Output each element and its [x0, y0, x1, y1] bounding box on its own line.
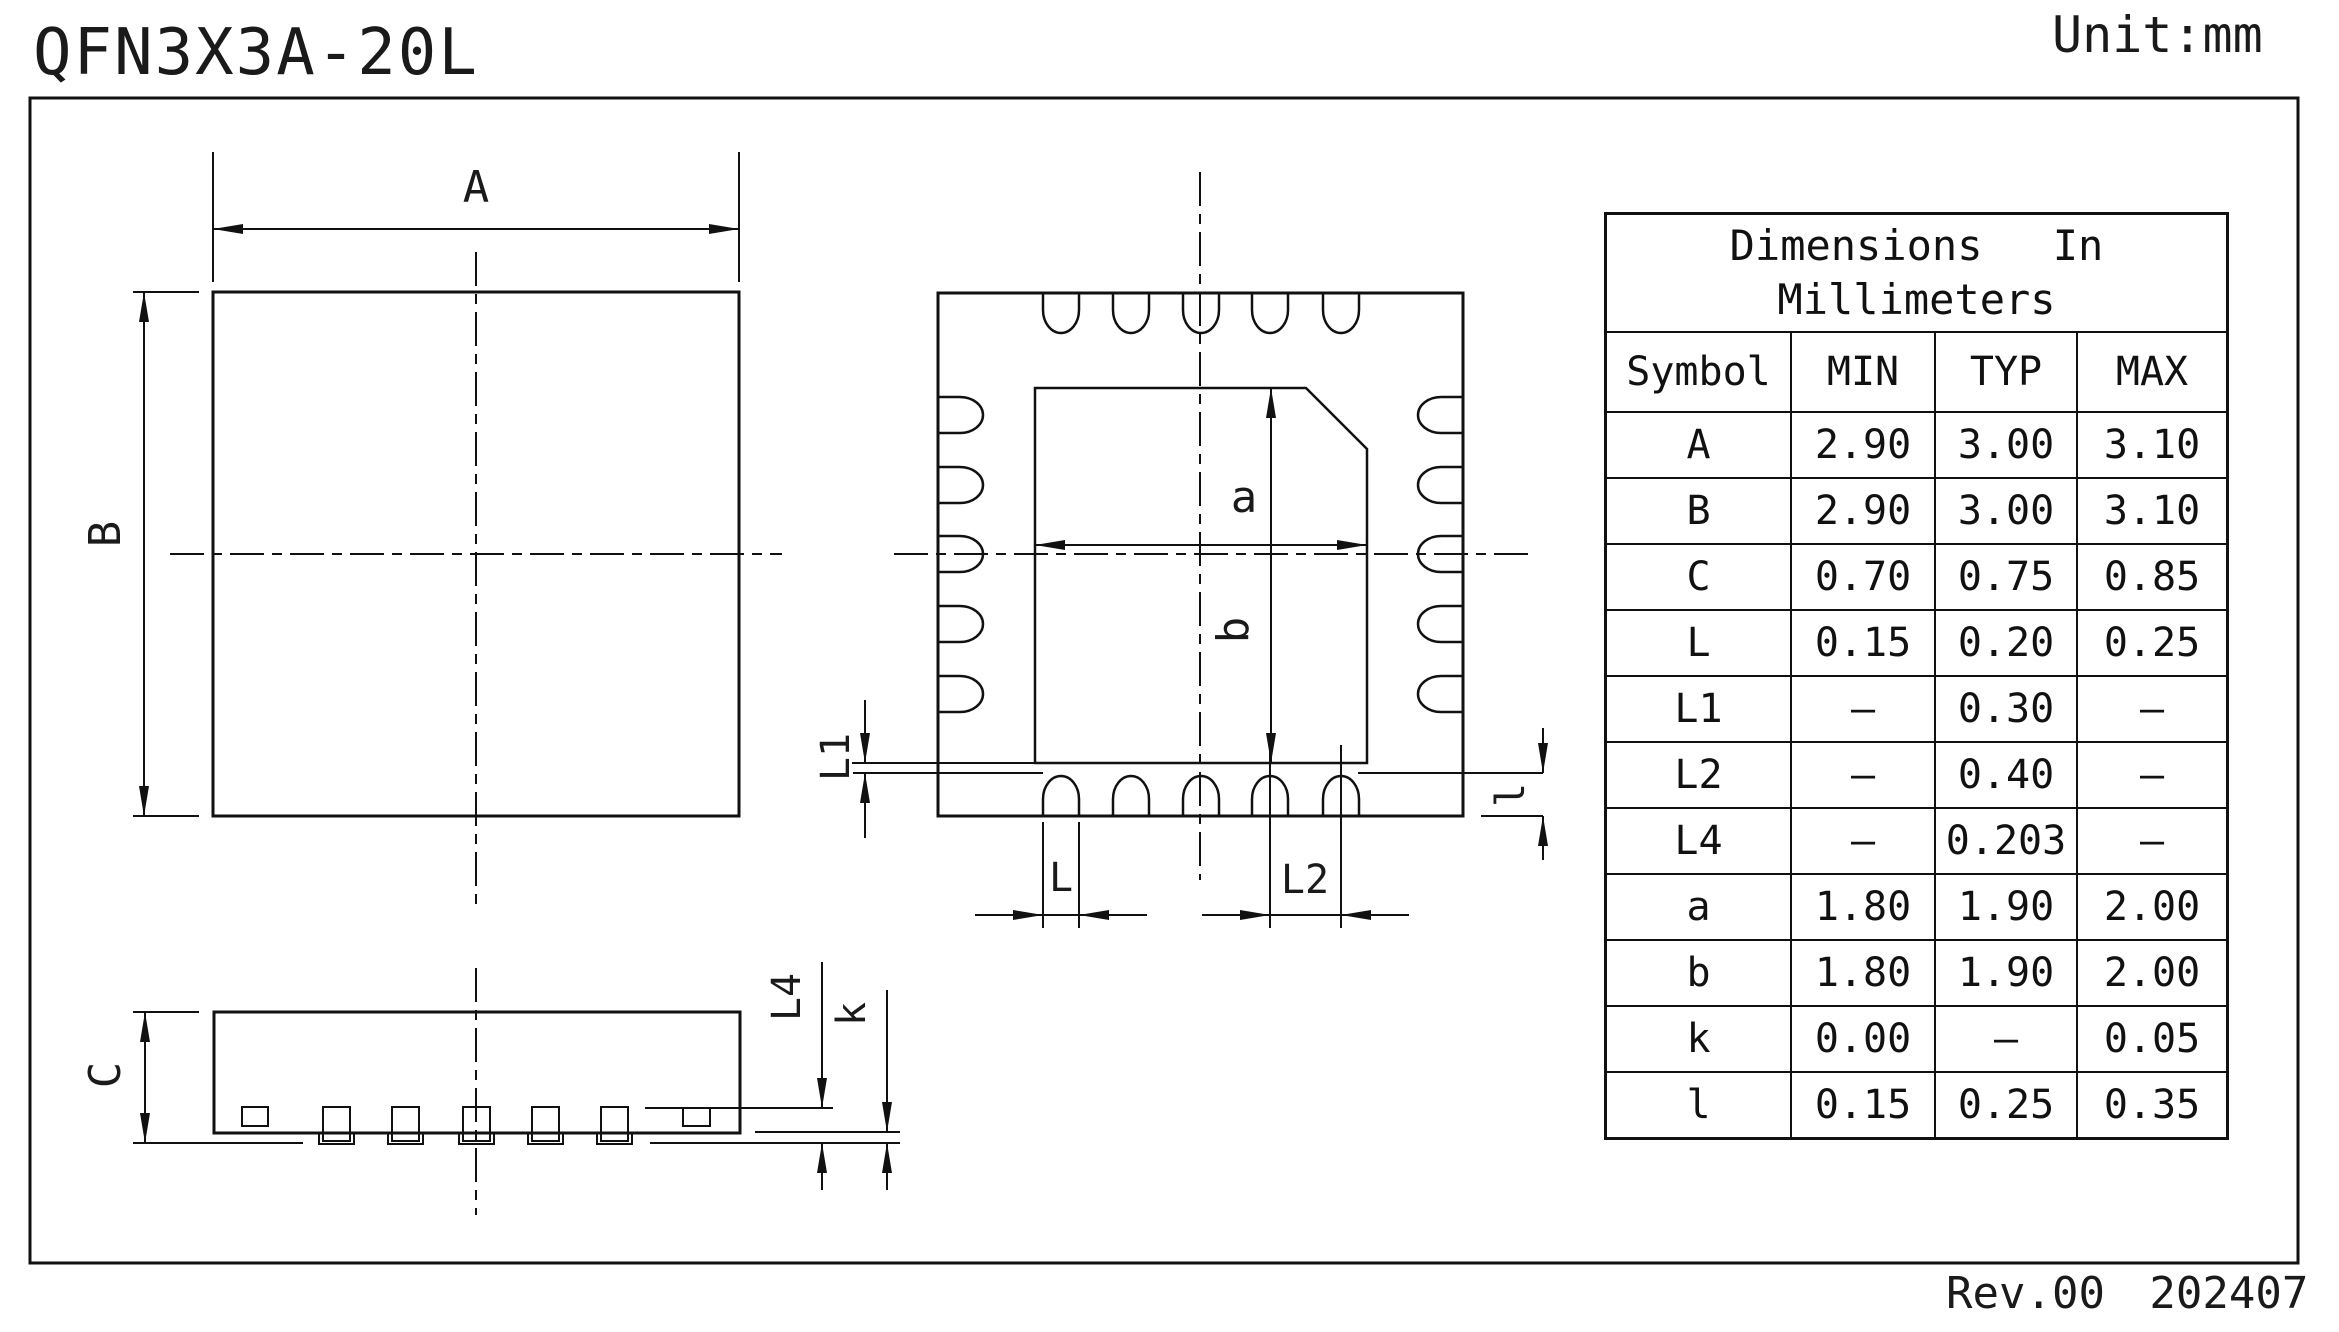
top-view: A B	[80, 152, 782, 905]
table-cell: 3.10	[2078, 413, 2226, 477]
dimension-k: k	[829, 990, 887, 1190]
table-cell: 0.15	[1792, 1073, 1934, 1137]
dimension-L: L	[975, 822, 1147, 928]
dim-label-L2: L2	[1281, 857, 1329, 903]
col-header-max: MAX	[2078, 333, 2226, 411]
table-cell: 2.00	[2078, 941, 2226, 1005]
col-header-symbol: Symbol	[1607, 333, 1790, 411]
dimension-l: l	[1358, 728, 1543, 860]
table-cell: B	[1607, 479, 1790, 543]
table-cell: 0.15	[1792, 611, 1934, 675]
dim-label-l: l	[1488, 783, 1534, 807]
table-cell: 0.40	[1936, 743, 2076, 807]
col-header-min: MIN	[1792, 333, 1934, 411]
table-cell: 3.00	[1936, 413, 2076, 477]
table-cell: L	[1607, 611, 1790, 675]
table-cell: A	[1607, 413, 1790, 477]
table-cell: L4	[1607, 809, 1790, 873]
table-cell: 1.90	[1936, 875, 2076, 939]
dim-label-L1: L1	[813, 733, 859, 781]
table-cell: 1.90	[1936, 941, 2076, 1005]
table-cell: b	[1607, 941, 1790, 1005]
dim-label-A: A	[463, 162, 490, 213]
table-cell: 0.25	[2078, 611, 2226, 675]
dim-label-k: k	[829, 1002, 875, 1026]
table-cell: –	[2078, 677, 2226, 741]
table-cell: 2.90	[1792, 413, 1934, 477]
table-cell: 2.00	[2078, 875, 2226, 939]
table-cell: 1.80	[1792, 875, 1934, 939]
table-title-line1: Dimensions In	[1730, 222, 2104, 270]
dim-label-a: a	[1231, 472, 1258, 523]
dimension-L4: L4	[764, 962, 822, 1190]
dim-label-L: L	[1049, 855, 1073, 901]
table-cell: L1	[1607, 677, 1790, 741]
dimensions-table: Dimensions In Millimeters Symbol MIN TYP…	[1604, 212, 2229, 1140]
table-cell: k	[1607, 1007, 1790, 1071]
dim-label-L4: L4	[764, 973, 810, 1021]
table-cell: –	[2078, 809, 2226, 873]
table-cell: 2.90	[1792, 479, 1934, 543]
dim-label-C: C	[80, 1062, 131, 1089]
table-cell: C	[1607, 545, 1790, 609]
table-cell: 3.00	[1936, 479, 2076, 543]
table-cell: 0.75	[1936, 545, 2076, 609]
col-header-typ: TYP	[1936, 333, 2076, 411]
table-title-line2: Millimeters	[1777, 276, 2055, 324]
dimension-C: C	[80, 1012, 199, 1143]
table-cell: –	[1936, 1007, 2076, 1071]
table-cell: 0.05	[2078, 1007, 2226, 1071]
side-view: C L4 k	[80, 962, 900, 1215]
dimension-b: b	[1208, 388, 1271, 763]
table-cell: 1.80	[1792, 941, 1934, 1005]
table-title: Dimensions In Millimeters	[1607, 215, 2226, 331]
table-cell: 0.25	[1936, 1073, 2076, 1137]
table-cell: 0.85	[2078, 545, 2226, 609]
drawing-sheet: QFN3X3A-20L Unit:mm Rev.00 202407 A	[0, 0, 2339, 1332]
table-cell: 0.70	[1792, 545, 1934, 609]
table-cell: 0.00	[1792, 1007, 1934, 1071]
dim-label-b: b	[1208, 617, 1259, 644]
table-cell: L2	[1607, 743, 1790, 807]
table-cell: 0.30	[1936, 677, 2076, 741]
table-cell: 3.10	[2078, 479, 2226, 543]
bottom-view: a b L1 L	[813, 172, 1543, 928]
table-cell: –	[1792, 677, 1934, 741]
table-cell: –	[1792, 809, 1934, 873]
table-cell: 0.203	[1936, 809, 2076, 873]
dim-label-B: B	[80, 521, 131, 548]
table-cell: l	[1607, 1073, 1790, 1137]
table-cell: –	[2078, 743, 2226, 807]
table-cell: –	[1792, 743, 1934, 807]
table-cell: 0.35	[2078, 1073, 2226, 1137]
table-cell: 0.20	[1936, 611, 2076, 675]
table-cell: a	[1607, 875, 1790, 939]
